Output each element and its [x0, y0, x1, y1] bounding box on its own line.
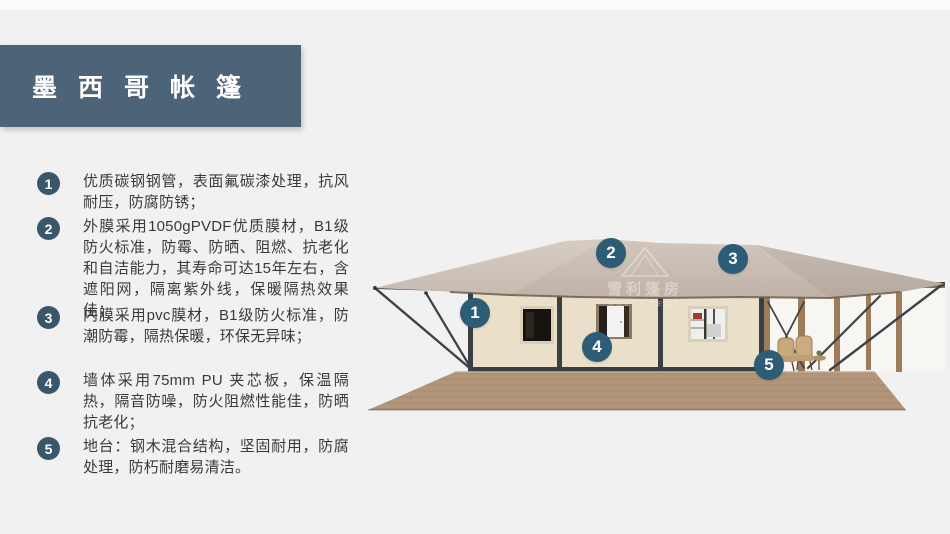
feature-item-5: 5 地台：钢木混合结构，坚固耐用，防腐处理，防朽耐磨易清洁。 — [37, 436, 349, 478]
porch-post — [896, 288, 902, 372]
feature-text: 内膜采用pvc膜材，B1级防火标准，防潮防霉，隔热保暖，环保无异味； — [83, 305, 349, 347]
slide: { "slide": { "title": "墨西哥帐篷", "features… — [0, 0, 950, 534]
feature-number-badge: 5 — [37, 437, 60, 460]
porch-post — [834, 288, 840, 372]
feature-text: 优质碳钢钢管，表面氟碳漆处理，抗风耐压，防腐防锈； — [83, 171, 349, 213]
feature-number-badge: 1 — [37, 172, 60, 195]
strut-anchor — [424, 291, 428, 295]
feature-number-badge: 4 — [37, 371, 60, 394]
feature-item-3: 3 内膜采用pvc膜材，B1级防火标准，防潮防霉，隔热保暖，环保无异味； — [37, 305, 349, 347]
page-top-strip — [0, 0, 950, 10]
deck-platform — [368, 372, 906, 410]
callout-badge-3: 3 — [718, 244, 748, 274]
feature-text: 地台：钢木混合结构，坚固耐用，防腐处理，防朽耐磨易清洁。 — [83, 436, 349, 478]
feature-text: 墙体采用75mm PU 夹芯板，保温隔热，隔音防噪，防火阻燃性能佳，防晒抗老化； — [83, 370, 349, 433]
callout-badge-4: 4 — [582, 332, 612, 362]
window-1 — [520, 306, 554, 344]
feature-number-badge: 2 — [37, 217, 60, 240]
watermark-text-cn: 雪利篷房 — [607, 280, 683, 298]
callout-badge-1: 1 — [460, 298, 490, 328]
page-title: 墨西哥帐篷 — [0, 68, 262, 104]
watermark-text-en: XUELI TENT — [608, 299, 681, 308]
callout-badge-5: 5 — [754, 350, 784, 380]
callout-badge-2: 2 — [596, 238, 626, 268]
feature-number-badge: 3 — [37, 306, 60, 329]
porch-post — [866, 290, 871, 370]
window-2 — [688, 306, 728, 342]
feature-item-4: 4 墙体采用75mm PU 夹芯板，保温隔热，隔音防噪，防火阻燃性能佳，防晒抗老… — [37, 370, 349, 433]
tent-illustration: 雪利篷房 XUELI TENT — [360, 218, 950, 424]
feature-item-1: 1 优质碳钢钢管，表面氟碳漆处理，抗风耐压，防腐防锈； — [37, 171, 349, 213]
wall-bottom-rail — [468, 367, 764, 372]
title-banner: 墨西哥帐篷 — [0, 45, 301, 127]
